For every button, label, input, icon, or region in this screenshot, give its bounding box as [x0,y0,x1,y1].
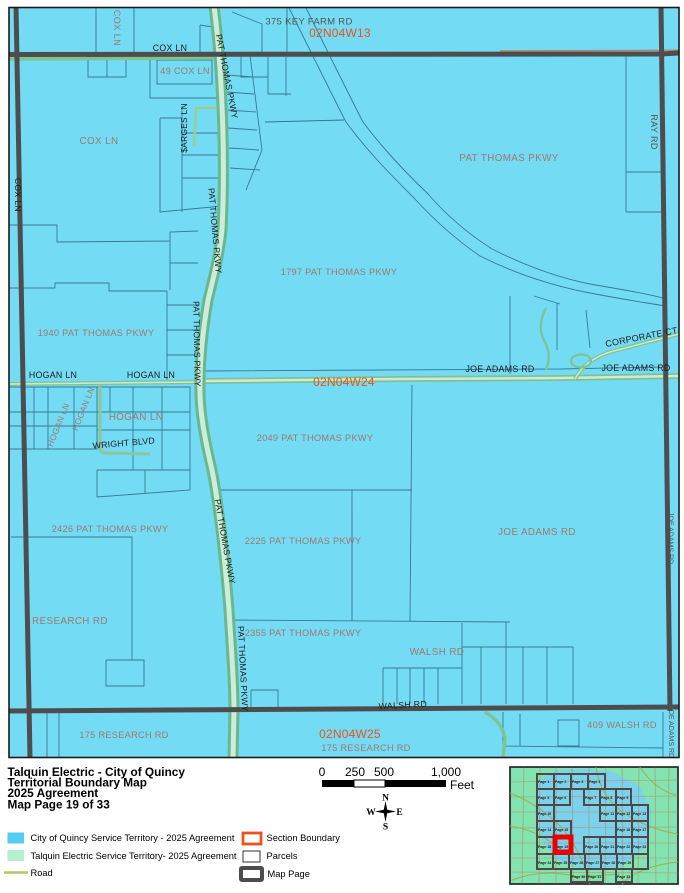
svg-text:250: 250 [345,765,365,779]
svg-text:Page 17: Page 17 [633,828,646,832]
svg-text:Page 25: Page 25 [554,861,567,865]
svg-text:Page 30: Page 30 [572,875,585,879]
svg-text:COX LN: COX LN [153,43,188,53]
svg-text:2049 PAT THOMAS PKWY: 2049 PAT THOMAS PKWY [257,433,374,443]
svg-text:500: 500 [374,765,394,779]
svg-text:Page 24: Page 24 [538,861,551,865]
svg-text:Talquin Electric Service Terri: Talquin Electric Service Territory- 2025… [31,851,237,861]
svg-text:Road: Road [31,868,53,878]
svg-text:2225 PAT THOMAS PKWY: 2225 PAT THOMAS PKWY [245,536,362,546]
svg-text:HOGAN LN: HOGAN LN [109,412,163,423]
svg-text:HOGAN LN: HOGAN LN [127,370,175,380]
svg-text:Page 2: Page 2 [555,780,566,784]
svg-text:Page 3: Page 3 [572,780,583,784]
svg-text:02N04W25: 02N04W25 [319,727,381,741]
svg-text:Page 9: Page 9 [617,796,628,800]
svg-text:COX LN: COX LN [80,136,119,147]
svg-text:Map Page 19 of 33: Map Page 19 of 33 [8,798,111,812]
svg-text:Page 26: Page 26 [570,861,583,865]
svg-text:1940 PAT THOMAS PKWY: 1940 PAT THOMAS PKWY [38,328,155,338]
svg-text:RAY RD: RAY RD [649,114,659,150]
svg-text:2355 PAT THOMAS PKWY: 2355 PAT THOMAS PKWY [245,628,362,638]
svg-text:Page 15: Page 15 [555,828,568,832]
svg-text:JOE ADAMS RD: JOE ADAMS RD [667,512,674,564]
svg-text:PAT THOMAS PKWY: PAT THOMAS PKWY [459,153,559,164]
svg-text:Section Boundary: Section Boundary [267,833,341,843]
svg-text:City of Quincy Service Territo: City of Quincy Service Territory - 2025 … [31,833,235,843]
svg-text:Parcels: Parcels [267,851,298,861]
svg-text:Map Page: Map Page [268,869,310,879]
svg-text:1797 PAT THOMAS PKWY: 1797 PAT THOMAS PKWY [281,267,398,277]
svg-text:1,000: 1,000 [431,765,461,779]
svg-text:Page 29: Page 29 [618,861,631,865]
svg-text:2426 PAT THOMAS PKWY: 2426 PAT THOMAS PKWY [52,524,169,534]
svg-text:409 WALSH RD: 409 WALSH RD [587,720,657,730]
svg-text:Feet: Feet [450,778,475,792]
svg-text:Page 5: Page 5 [538,796,549,800]
svg-text:JOE ADAMS RD: JOE ADAMS RD [465,364,534,374]
svg-text:W: W [366,808,376,818]
svg-text:Page 11: Page 11 [601,812,614,816]
svg-text:Page 13: Page 13 [633,812,646,816]
svg-text:Page 20: Page 20 [585,845,598,849]
svg-text:Page 18: Page 18 [538,845,551,849]
svg-text:Page 28: Page 28 [602,861,615,865]
svg-text:COX LN: COX LN [13,178,23,212]
svg-text:Page 8: Page 8 [601,796,612,800]
svg-text:175 RESEARCH RD: 175 RESEARCH RD [321,743,410,753]
svg-text:0: 0 [319,765,326,779]
svg-text:Page 12: Page 12 [617,812,630,816]
svg-text:Page 21: Page 21 [601,845,614,849]
svg-text:WALSH RD: WALSH RD [410,647,465,658]
svg-text:Page 1: Page 1 [538,780,549,784]
svg-text:RESEARCH RD: RESEARCH RD [32,616,108,627]
svg-text:02N04W24: 02N04W24 [313,375,375,389]
svg-text:Page 22: Page 22 [617,845,630,849]
svg-text:JOE ADAMS RD: JOE ADAMS RD [498,527,576,538]
svg-text:COX LN: COX LN [112,10,122,47]
svg-text:02N04W13: 02N04W13 [309,26,371,40]
svg-text:PAT THOMAS PKWY: PAT THOMAS PKWY [191,301,202,387]
svg-text:Page 4: Page 4 [589,780,600,784]
svg-text:49 COX LN: 49 COX LN [160,66,210,76]
svg-text:S: S [383,823,388,833]
svg-text:Page 27: Page 27 [586,861,599,865]
svg-text:E: E [396,808,402,818]
svg-text:Page 16: Page 16 [617,828,630,832]
svg-text:HOGAN LN: HOGAN LN [29,370,77,380]
svg-text:JOE ADAMS RD: JOE ADAMS RD [601,363,670,373]
svg-text:Page 31: Page 31 [588,875,601,879]
svg-text:175 RESEARCH RD: 175 RESEARCH RD [79,730,168,740]
svg-text:$ARGES LN: $ARGES LN [179,103,189,153]
svg-text:Page 6: Page 6 [555,796,566,800]
svg-text:Page 7: Page 7 [585,796,596,800]
svg-text:Page 10: Page 10 [538,812,551,816]
svg-text:Page 33: Page 33 [617,875,630,879]
svg-text:Page 14: Page 14 [538,828,551,832]
svg-text:JOE ADAMS RD: JOE ADAMS RD [667,706,674,758]
svg-text:Page 23: Page 23 [633,845,646,849]
